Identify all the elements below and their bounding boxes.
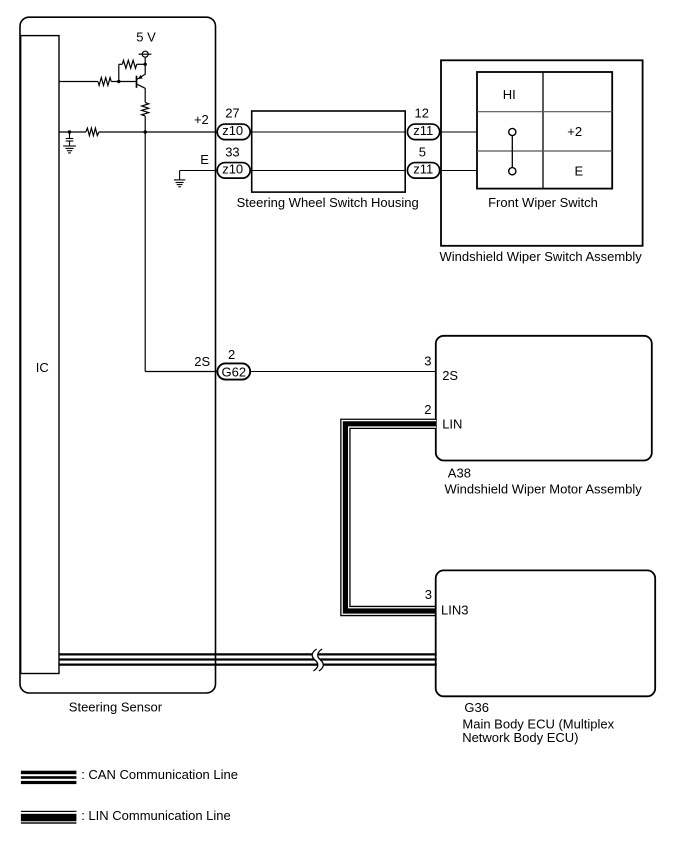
svg-text:G36: G36 [464,700,489,715]
svg-text:5 V: 5 V [136,30,156,45]
svg-text:2: 2 [228,347,235,362]
svg-text:Main Body ECU (Multiplex: Main Body ECU (Multiplex [462,716,614,731]
svg-text:3: 3 [425,587,432,602]
svg-text:+2: +2 [567,124,582,139]
svg-text:LIN3: LIN3 [441,603,468,618]
svg-text:Steering Wheel Switch Housing: Steering Wheel Switch Housing [237,195,419,210]
svg-text:E: E [200,152,209,167]
svg-text:z10: z10 [222,161,243,176]
svg-text:: CAN Communication Line: : CAN Communication Line [81,767,238,782]
svg-text:2S: 2S [194,354,210,369]
svg-text:2S: 2S [442,368,458,383]
svg-text:2: 2 [424,402,431,417]
svg-text:A38: A38 [448,466,471,481]
svg-text:z10: z10 [222,123,243,138]
svg-text:27: 27 [225,105,239,120]
svg-text:+2: +2 [194,112,209,127]
svg-text:z11: z11 [413,123,433,138]
svg-text:3: 3 [424,353,431,368]
svg-text:z11: z11 [413,161,433,176]
svg-text:Windshield Wiper Motor Assembl: Windshield Wiper Motor Assembly [445,482,643,497]
svg-text:Steering Sensor: Steering Sensor [69,700,163,715]
svg-text:12: 12 [415,105,429,120]
svg-text:Network Body ECU): Network Body ECU) [462,730,578,745]
svg-text:Windshield Wiper Switch Assemb: Windshield Wiper Switch Assembly [440,249,643,264]
svg-text:IC: IC [36,360,49,375]
svg-text:G62: G62 [222,364,247,379]
svg-text:Front Wiper Switch: Front Wiper Switch [488,195,598,210]
svg-text:LIN: LIN [442,417,462,432]
svg-text:E: E [574,164,583,179]
svg-text:5: 5 [419,144,426,159]
svg-text:33: 33 [225,144,239,159]
svg-text:HI: HI [503,87,516,102]
svg-text:: LIN Communication Line: : LIN Communication Line [81,808,231,823]
